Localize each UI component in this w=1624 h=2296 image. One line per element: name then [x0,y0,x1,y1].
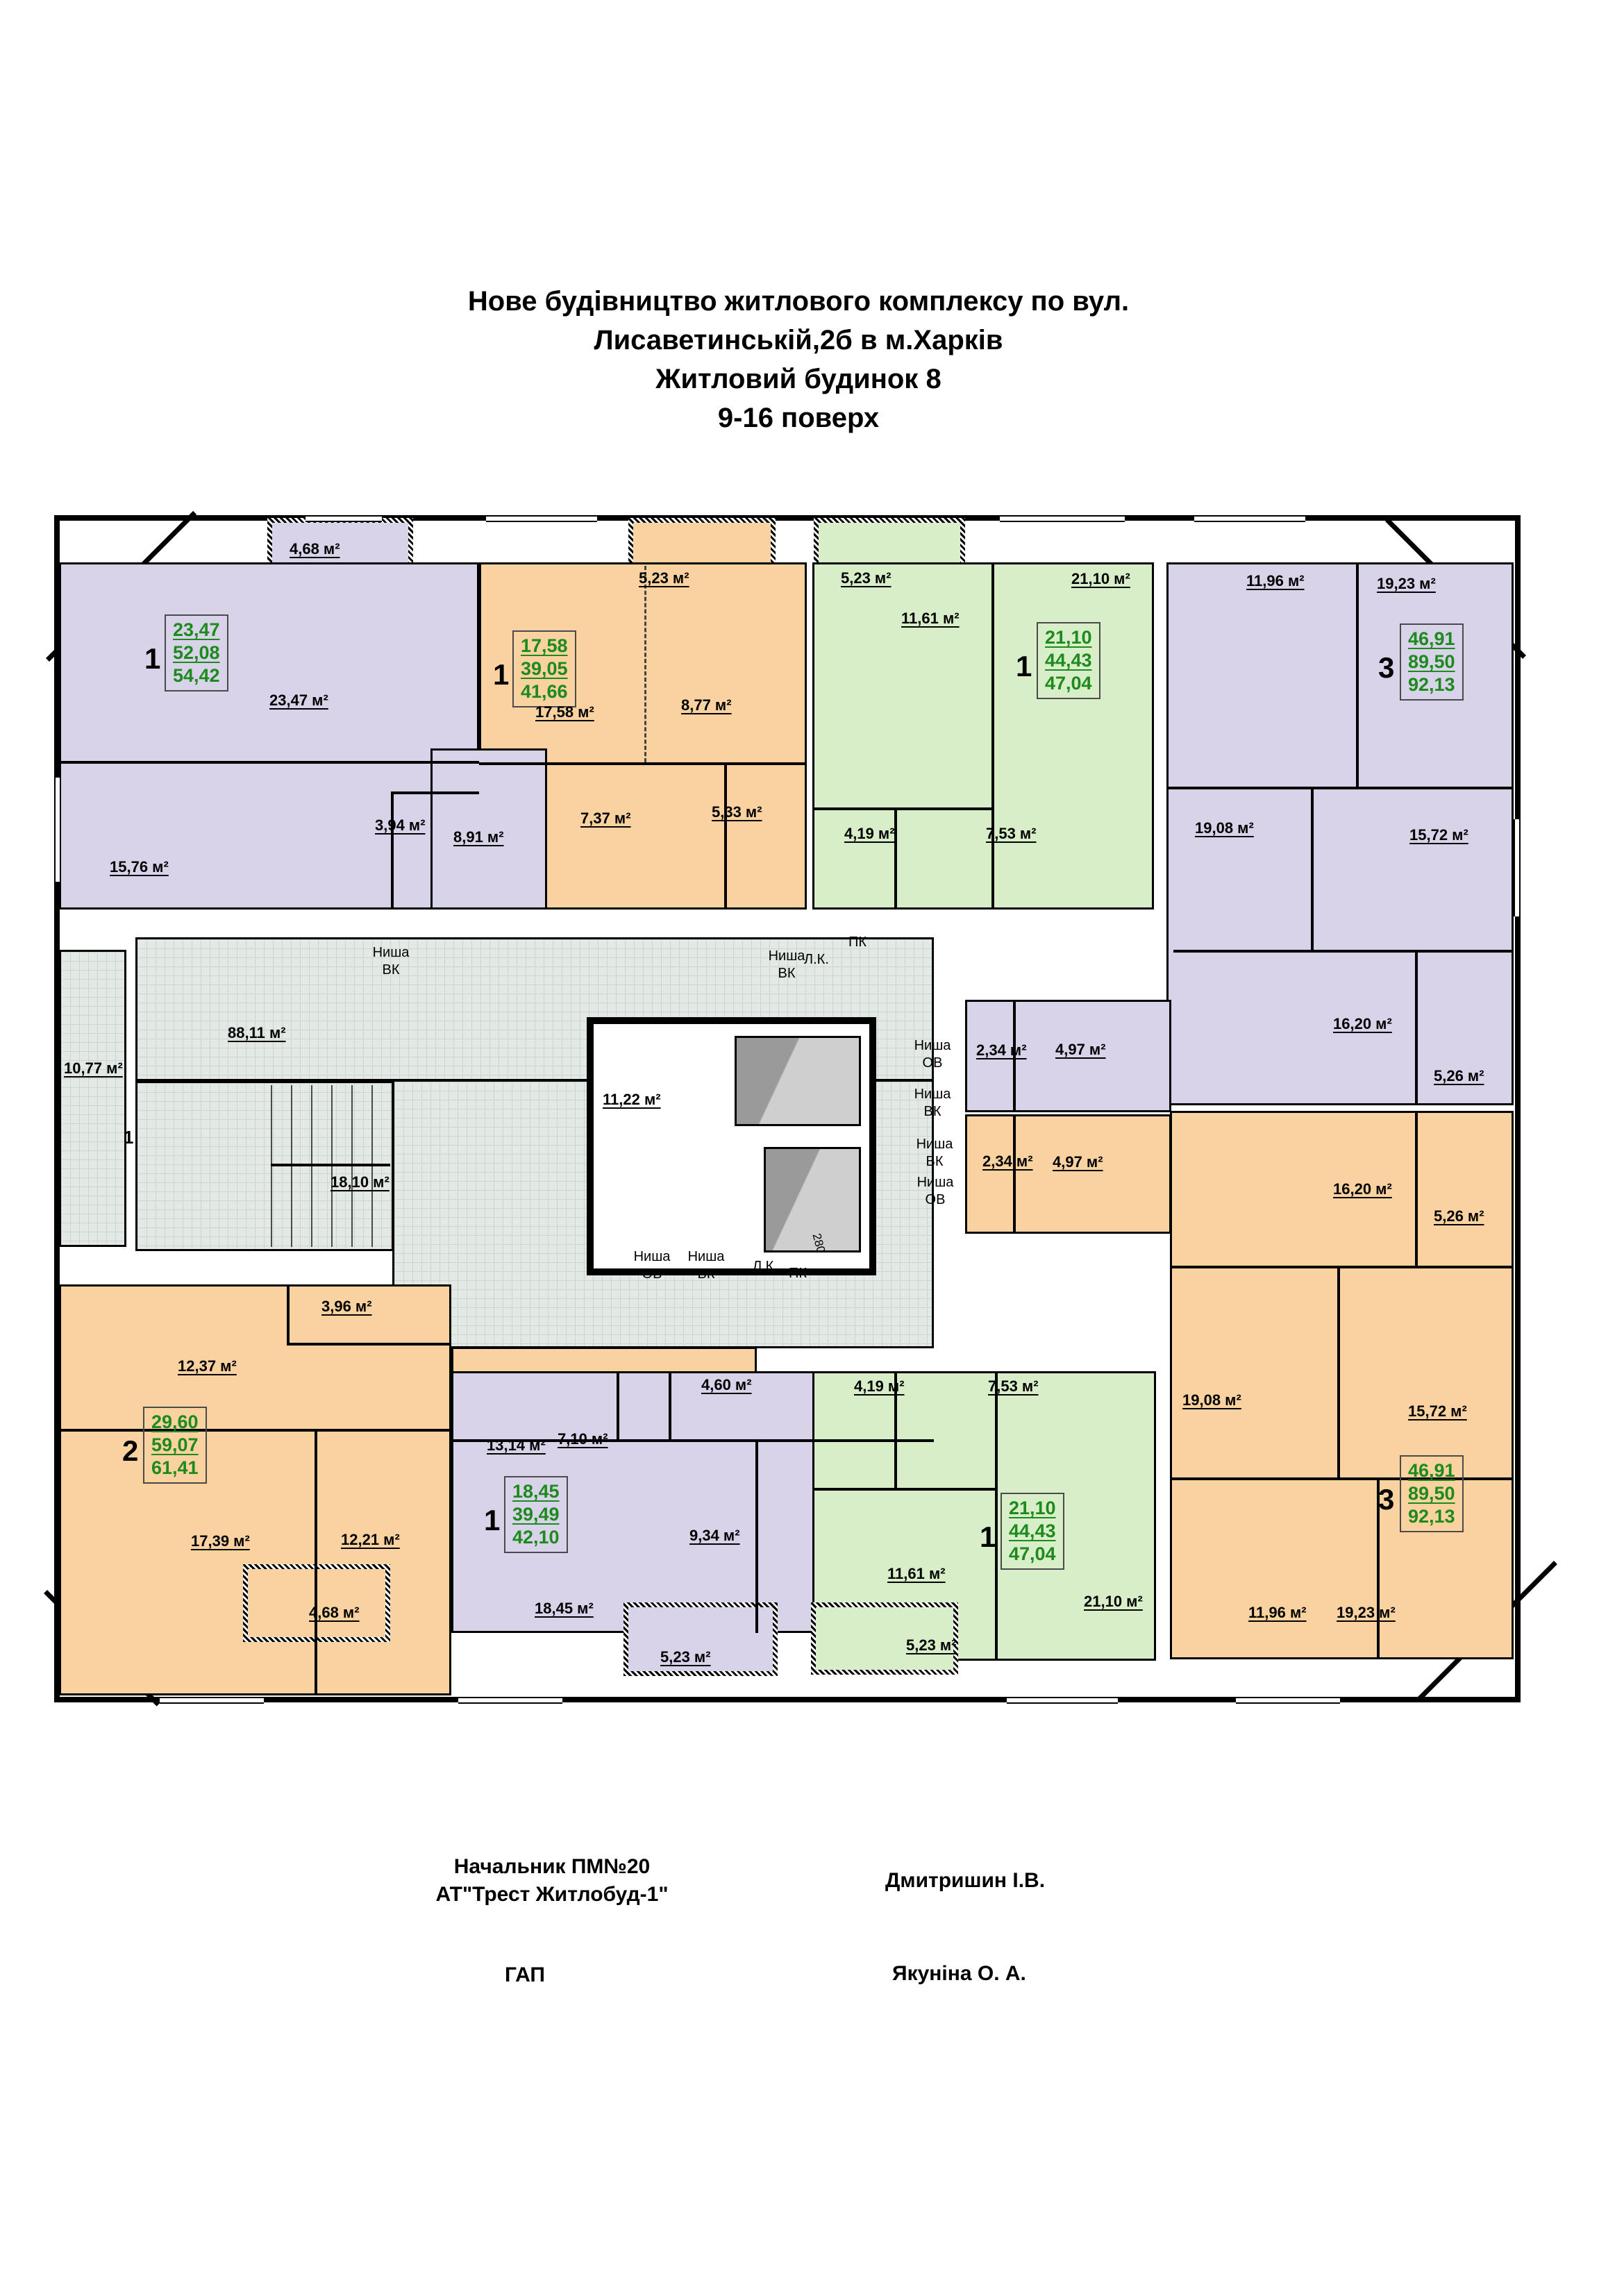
room-area-label: 7,53 м² [988,1377,1039,1396]
fire-hydrant-label: ПК [789,1265,807,1282]
room-area-label: 12,37 м² [178,1357,237,1375]
wall [1337,1268,1340,1479]
room-area-label: 15,72 м² [1408,1402,1467,1421]
room-area-label: 5,26 м² [1434,1207,1484,1225]
wall [1166,787,1514,789]
apartment-stats-box: 46,91 89,50 92,13 [1400,623,1464,701]
heated-area: 52,08 [173,642,220,664]
room-area-label: 18,45 м² [535,1600,594,1618]
wall [391,791,479,794]
apartment-number: 1 [484,1504,500,1537]
room-area-label: 16,20 м² [1333,1180,1392,1198]
wall [1415,1111,1418,1267]
apartment-number: 1 [493,658,509,692]
living-area: 46,91 [1408,628,1455,650]
room-area-label: 5,23 м² [906,1636,957,1654]
floor-plan-sheet: Нове будівництво житлового комплексу по … [0,0,1624,2296]
room-area-label: 21,10 м² [1071,570,1130,588]
living-area: 29,60 [151,1411,199,1433]
living-area: 17,58 [521,635,568,657]
room-area-label: 11,96 м² [1248,1604,1307,1622]
apartment-stats-box: 18,45 39,49 42,10 [504,1476,568,1553]
room-area-label: 4,68 м² [309,1604,360,1622]
niche-label: Ниша ВК [362,944,419,979]
approver-name: Дмитришин І.В. [885,1869,1045,1893]
window [1007,1697,1118,1704]
room-area-label: 8,91 м² [453,828,504,846]
apartment-stats-box: 21,10 44,43 47,04 [1001,1493,1064,1570]
total-area: 92,13 [1408,1506,1455,1527]
wall [59,761,479,764]
room-area-label: 2,34 м² [976,1041,1027,1059]
wall [315,1432,317,1695]
room-area-label: 15,76 м² [110,858,169,876]
niche-label: Ниша ОВ [904,1037,961,1072]
window [1514,819,1521,916]
apartment-number: 2 [122,1434,138,1468]
living-area: 18,45 [512,1481,560,1502]
room-area-label: 2,34 м² [982,1153,1033,1171]
window [458,1697,562,1704]
room-area-label: 3,96 м² [321,1298,372,1316]
room-area-label: 3,94 м² [375,816,426,835]
room-area-label: 5,23 м² [660,1648,711,1666]
window [1000,515,1125,522]
wall [991,562,994,910]
niche-label: Ниша ОВ [623,1248,680,1283]
room-area-label: 8,77 м² [681,696,732,714]
stair-landing [271,1164,390,1166]
heated-area: 39,49 [512,1504,560,1525]
staircase-label: Л.К. [753,1258,778,1275]
wall [287,1343,451,1346]
wall [1013,1114,1016,1234]
approver-role-line2: АТ"Трест Житлобуд-1" [378,1883,726,1907]
room-area-label: 7,37 м² [580,810,631,828]
page-title-line1: Нове будівництво житлового комплексу по … [389,286,1208,317]
room-area-label: 17,58 м² [535,703,594,721]
loggia-region [59,950,126,1247]
room-area-label: 11,96 м² [1246,572,1305,590]
room-area-label: 10,77 м² [64,1059,123,1078]
page-title-line3: Житловий будинок 8 [389,364,1208,395]
room-area-label: 19,23 м² [1377,575,1436,593]
room-area-label: 15,72 м² [1409,826,1468,844]
window [54,778,61,882]
room-area-label: 11,61 м² [887,1565,946,1583]
room-area-label: 4,19 м² [844,825,895,843]
living-area: 21,10 [1009,1498,1056,1519]
page-title-line4: 9-16 поверх [389,403,1208,434]
wall [1415,953,1418,1104]
heated-area: 89,50 [1408,651,1455,673]
niche-label: Ниша ОВ [907,1174,964,1209]
total-area: 41,66 [521,681,568,703]
heated-area: 44,43 [1009,1520,1056,1542]
total-area: 92,13 [1408,674,1455,696]
living-area: 23,47 [173,619,220,641]
wall [812,1488,996,1491]
niche-label: Ниша ВК [678,1248,735,1283]
total-area: 54,42 [173,665,220,687]
wall [1356,562,1359,788]
total-area: 47,04 [1009,1543,1056,1565]
wall [287,1284,290,1346]
room-area-label: 7,10 м² [558,1430,608,1448]
room-area-label: 17,39 м² [191,1532,250,1550]
window [1236,1697,1340,1704]
partition-dashed [644,566,646,762]
room-area-label: 9,34 м² [689,1527,740,1545]
room-area-label: 21,10 м² [1084,1593,1143,1611]
wall [1170,1266,1514,1268]
wall [1311,789,1314,951]
total-area: 47,04 [1045,673,1092,694]
room-area-label: 7,53 м² [986,825,1037,843]
living-area: 46,91 [1408,1460,1455,1482]
apartment-number: 1 [144,642,160,676]
elevator-shaft [735,1036,861,1126]
room-area-label: 11,61 м² [901,610,960,628]
apartment-stats-box: 21,10 44,43 47,04 [1037,622,1100,699]
room-area-label: 88,11 м² [228,1024,286,1042]
architect-name: Якуніна О. А. [892,1962,1026,1986]
room-area-label: 5,33 м² [712,803,762,821]
room-area-label: 5,23 м² [639,569,689,587]
room-area-label: 16,20 м² [1333,1015,1392,1033]
apartment-region-1-top-left [59,562,479,910]
room-area-label: 4,60 м² [701,1376,752,1394]
staircase-label: Л.К. [804,951,829,969]
wall [995,1371,998,1661]
apartment-region-1-top-green [812,562,1154,910]
total-area: 61,41 [151,1457,199,1479]
apartment-number: 1 [1016,650,1032,683]
wall [59,1429,451,1432]
room-area-label: 4,97 м² [1053,1153,1103,1171]
room-area-label: 11,22 м² [603,1091,661,1109]
heated-area: 39,05 [521,658,568,680]
room-area-label: 13,14 м² [487,1436,546,1455]
wall [669,1371,671,1441]
apartment-stats-box: 23,47 52,08 54,42 [165,614,228,692]
room-area-label: 4,68 м² [290,540,340,558]
fire-hydrant-label: ПК [848,934,867,951]
window [160,1697,264,1704]
room-area-label: 4,19 м² [854,1377,905,1396]
room-area-label: 18,10 м² [330,1173,390,1191]
room-area-label: 23,47 м² [269,692,328,710]
wall [724,765,727,910]
room-area-label: 12,21 м² [341,1531,400,1549]
apartment-number: 3 [1378,1483,1394,1516]
heated-area: 44,43 [1045,650,1092,671]
room-area-label: 5,26 м² [1434,1067,1484,1085]
room-area-label: 4,97 м² [1055,1041,1106,1059]
living-area: 21,10 [1045,627,1092,648]
wall [755,1442,758,1633]
apartment-stats-box: 17,58 39,05 41,66 [512,630,576,707]
niche-label: Ниша ВК [906,1136,963,1171]
heated-area: 89,50 [1408,1483,1455,1505]
window [305,515,382,522]
total-area: 42,10 [512,1527,560,1548]
apartment-stats-box: 46,91 89,50 92,13 [1400,1455,1464,1532]
apartment-stats-box: 29,60 59,07 61,41 [143,1407,207,1484]
wall [1173,950,1514,953]
room-area-label: 19,08 м² [1182,1391,1241,1409]
wall [617,1371,619,1441]
bathroom-strip-region [965,1114,1171,1234]
apartment-number: 1 [980,1520,996,1554]
room-area-label: 19,23 м² [1337,1604,1396,1622]
window [486,515,597,522]
room-area-label: 19,08 м² [1195,819,1254,837]
wall [812,807,993,810]
page-title-line2: Лисаветинській,2б в м.Харків [389,325,1208,356]
niche-label: Ниша ВК [904,1086,961,1121]
window [1194,515,1305,522]
entrance-number-label: 1 [124,1126,133,1149]
architect-role: ГАП [505,1963,545,1987]
heated-area: 59,07 [151,1434,199,1456]
approver-role-line1: Начальник ПМ№20 [378,1855,726,1879]
apartment-number: 3 [1378,651,1394,685]
room-area-label: 5,23 м² [841,569,891,587]
wall [479,762,807,765]
wall [391,791,394,910]
